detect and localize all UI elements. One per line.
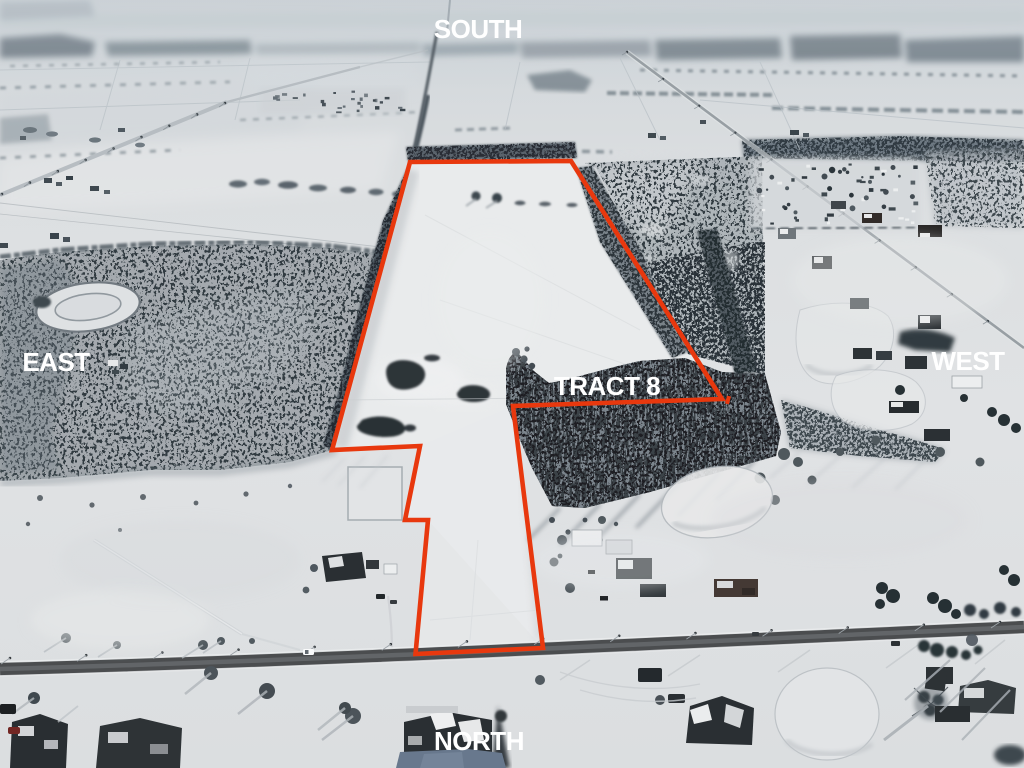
svg-text:NORTH: NORTH — [434, 726, 524, 756]
svg-text:EAST: EAST — [22, 347, 90, 377]
svg-text:SOUTH: SOUTH — [434, 14, 523, 44]
svg-text:WEST: WEST — [931, 346, 1005, 376]
svg-text:TRACT 8: TRACT 8 — [554, 371, 660, 401]
